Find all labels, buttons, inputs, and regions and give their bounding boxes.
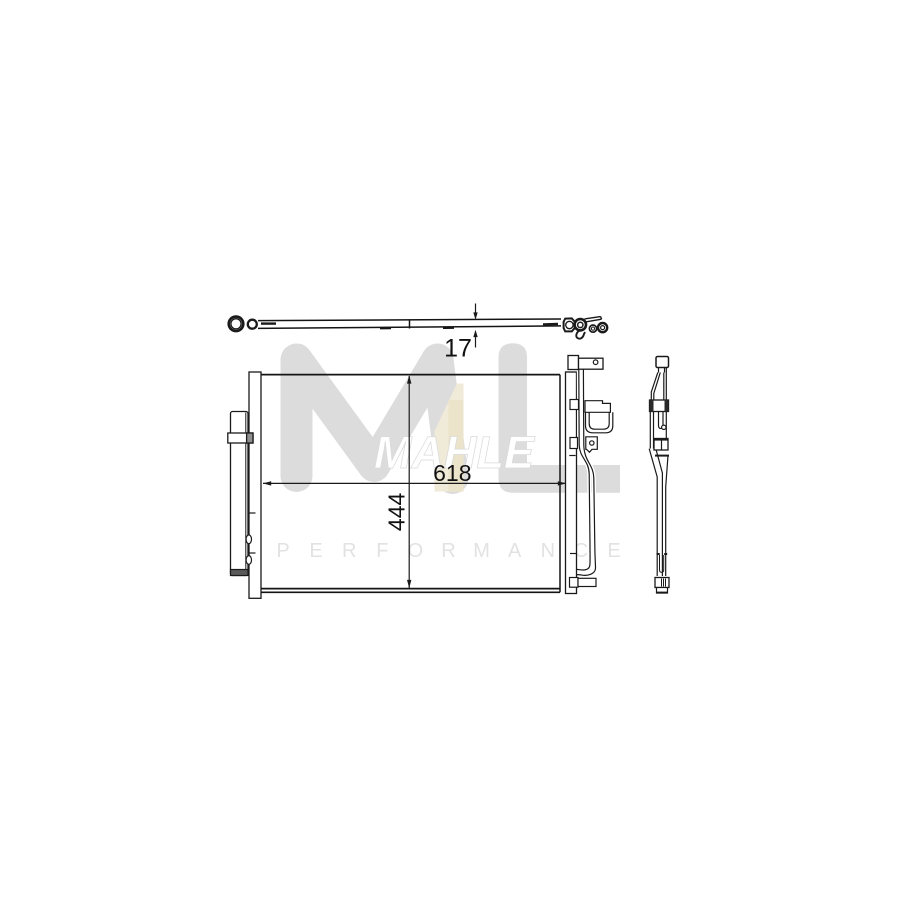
svg-text:E: E	[607, 540, 620, 562]
svg-text:O: O	[408, 540, 424, 562]
svg-text:R: R	[342, 540, 356, 562]
svg-text:R: R	[441, 540, 455, 562]
svg-text:F: F	[376, 540, 388, 562]
svg-text:A: A	[508, 540, 522, 562]
svg-text:444: 444	[384, 493, 410, 532]
svg-text:M: M	[473, 540, 490, 562]
svg-text:N: N	[541, 540, 555, 562]
svg-text:618: 618	[433, 460, 471, 486]
svg-text:P: P	[276, 540, 289, 562]
svg-text:17: 17	[444, 335, 472, 363]
svg-text:E: E	[309, 540, 322, 562]
